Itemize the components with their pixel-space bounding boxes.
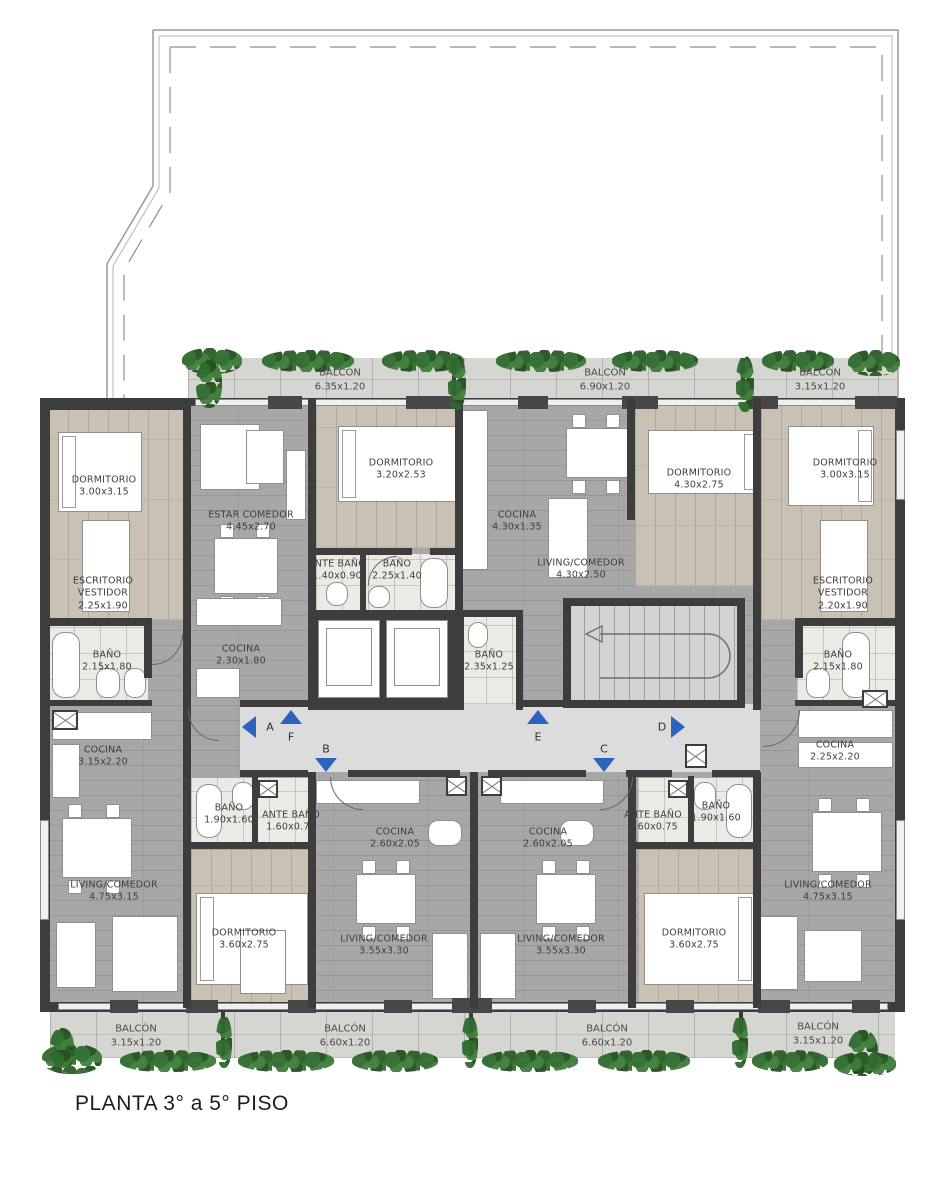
room-label-dormitorio: DORMITORIO3.00x3.15 <box>813 458 878 483</box>
plant <box>216 1016 232 1068</box>
unit-arrow-d-icon <box>671 716 685 738</box>
room-label-ante-bano: ANTE BAÑO1.60x0.75 <box>262 810 320 835</box>
room-label-bano: BAÑO1.90x1.60 <box>691 801 741 826</box>
unit-marker-d: D <box>658 721 666 734</box>
room-label-dormitorio: DORMITORIO3.00x3.15 <box>72 475 137 500</box>
vent-shaft-icon <box>481 776 502 796</box>
plant <box>448 356 466 410</box>
balcony-label: BALCÓN3.15x1.20 <box>795 367 845 394</box>
unit-arrow-c-icon <box>593 758 615 772</box>
balcony-label: BALCÓN6.35x1.20 <box>315 367 365 394</box>
plant <box>834 1052 896 1076</box>
plant <box>352 1050 438 1072</box>
plant <box>238 1050 334 1072</box>
balcony-label: BALCÓN3.15x1.20 <box>793 1021 843 1048</box>
room-label-living-comedor: LIVING/COMEDOR3.55x3.30 <box>340 934 428 959</box>
room-label-dormitorio: DORMITORIO3.60x2.75 <box>212 928 277 953</box>
room-label-ante-bano: ANTE BAÑO1.40x0.90 <box>308 559 366 584</box>
room-label-escritorio-vestidor: ESCRITORIOVESTIDOR2.20x1.90 <box>813 575 873 612</box>
vent-shaft-icon <box>52 710 78 730</box>
room-label-living-comedor: LIVING/COMEDOR4.75x3.15 <box>784 880 872 905</box>
unit-arrow-e-icon <box>527 710 549 724</box>
room-label-dormitorio: DORMITORIO4.30x2.75 <box>667 468 732 493</box>
room-label-cocina: COCINA2.25x2.20 <box>810 740 860 765</box>
unit-arrow-f-icon <box>280 710 302 724</box>
room-label-bano: BAÑO2.35x1.25 <box>464 650 514 675</box>
room-label-living-comedor: LIVING/COMEDOR3.55x3.30 <box>517 934 605 959</box>
room-label-ante-bano: ANTE BAÑO1.60x0.75 <box>624 810 682 835</box>
plant <box>120 1050 216 1072</box>
unit-marker-b: B <box>322 743 330 756</box>
vent-shaft-icon <box>258 780 278 798</box>
room-label-bano: BAÑO2.15x1.80 <box>813 650 863 675</box>
plant <box>50 1028 74 1068</box>
balcony-label: BALCÓN6.90x1.20 <box>580 367 630 394</box>
room-label-cocina: COCINA2.30x1.80 <box>216 644 266 669</box>
plant <box>462 1016 478 1068</box>
balcony-label: BALCÓN6.60x1.20 <box>582 1023 632 1050</box>
balcony-label: BALCÓN6.60x1.20 <box>320 1023 370 1050</box>
room-label-cocina: COCINA2.60x2.05 <box>370 827 420 852</box>
plant <box>732 1016 748 1068</box>
vent-shaft-icon <box>862 690 888 708</box>
unit-marker-c: C <box>600 743 608 756</box>
room-label-cocina: COCINA2.60x2.05 <box>523 827 573 852</box>
room-label-bano: BAÑO2.15x1.80 <box>82 650 132 675</box>
unit-arrow-b-icon <box>315 758 337 772</box>
vent-shaft-icon <box>685 744 707 768</box>
vent-shaft-icon <box>668 780 688 798</box>
plant <box>598 1050 690 1072</box>
plant <box>482 1050 578 1072</box>
plan-title: PLANTA 3° a 5° PISO <box>75 1092 289 1116</box>
room-label-bano: BAÑO1.90x1.60 <box>204 803 254 828</box>
room-label-dormitorio: DORMITORIO3.60x2.75 <box>662 928 727 953</box>
unit-arrow-a-icon <box>242 716 256 738</box>
plant <box>196 360 222 408</box>
vent-shaft-icon <box>446 776 467 796</box>
plant <box>496 350 586 372</box>
room-label-dormitorio: DORMITORIO3.20x2.53 <box>369 458 434 483</box>
unit-marker-e: E <box>535 731 542 744</box>
unit-marker-f: F <box>288 731 294 744</box>
room-label-estar-comedor: ESTAR COMEDOR4.45x2.70 <box>208 510 294 535</box>
room-label-bano: BAÑO2.25x1.40 <box>372 559 422 584</box>
room-label-cocina: COCINA4.30x1.35 <box>492 510 542 535</box>
room-label-living-comedor: LIVING/COMEDOR4.75x3.15 <box>70 880 158 905</box>
floor-plan: BALCÓN6.35x1.20 BALCÓN6.90x1.20 BALCÓN3.… <box>0 0 950 1200</box>
balcony-label: BALCÓN3.15x1.20 <box>111 1023 161 1050</box>
plant <box>848 350 900 376</box>
room-label-escritorio-vestidor: ESCRITORIOVESTIDOR2.25x1.90 <box>73 575 133 612</box>
room-label-living-comedor: LIVING/COMEDOR4.30x2.50 <box>537 558 625 583</box>
plant <box>752 1050 828 1072</box>
plant <box>736 356 754 412</box>
room-label-cocina: COCINA3.15x2.20 <box>78 745 128 770</box>
unit-marker-a: A <box>266 721 274 734</box>
